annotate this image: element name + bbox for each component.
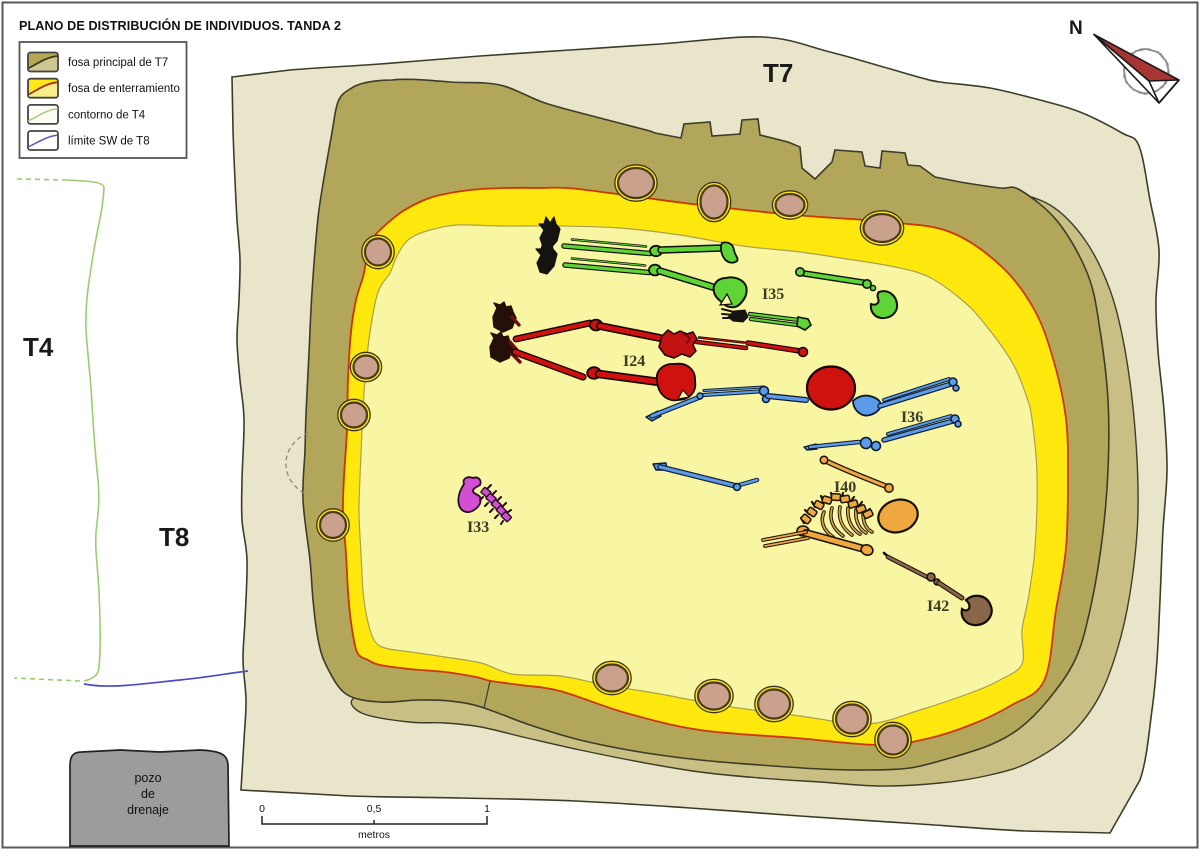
svg-text:T4: T4: [23, 332, 54, 362]
svg-text:T7: T7: [763, 58, 793, 88]
svg-text:PLANO DE DISTRIBUCIÓN DE INDIV: PLANO DE DISTRIBUCIÓN DE INDIVIDUOS. TAN…: [19, 18, 341, 33]
svg-text:0,5: 0,5: [367, 803, 382, 815]
svg-text:I24: I24: [623, 353, 645, 370]
svg-text:N: N: [1069, 18, 1083, 39]
svg-text:I33: I33: [467, 519, 489, 536]
svg-text:drenaje: drenaje: [127, 803, 169, 817]
svg-text:I40: I40: [834, 479, 856, 496]
svg-text:pozo: pozo: [134, 771, 161, 785]
svg-text:T8: T8: [159, 522, 189, 552]
svg-text:1: 1: [484, 803, 490, 815]
svg-text:metros: metros: [358, 829, 390, 841]
svg-text:contorno de T4: contorno de T4: [68, 109, 146, 121]
svg-text:I36: I36: [901, 409, 923, 426]
svg-text:límite SW de T8: límite SW de T8: [68, 136, 150, 148]
svg-text:fosa de enterramiento: fosa de enterramiento: [68, 83, 180, 95]
svg-text:de: de: [141, 787, 155, 801]
svg-text:I42: I42: [927, 598, 949, 615]
svg-text:fosa principal de T7: fosa principal de T7: [68, 57, 168, 69]
svg-text:0: 0: [259, 803, 265, 815]
svg-text:I35: I35: [762, 286, 784, 303]
